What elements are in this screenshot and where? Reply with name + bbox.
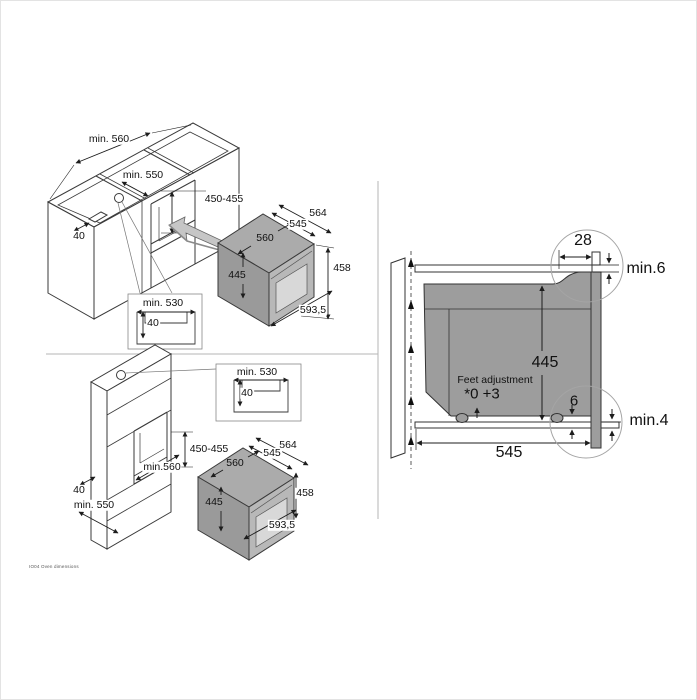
dim-label: 450-455 xyxy=(189,444,230,455)
dim-label: 450-455 xyxy=(204,194,245,205)
dim-label: min.6 xyxy=(625,261,666,277)
dim-label: 445 xyxy=(205,497,223,508)
dim-label: min. 560 xyxy=(88,134,130,145)
shelf xyxy=(415,422,619,428)
dim-label: min. 550 xyxy=(122,170,164,181)
dim-label: *0 +3 xyxy=(464,387,499,402)
base-cabinet-view xyxy=(48,123,334,349)
dim-label: 445 xyxy=(532,355,559,371)
dim-label: 560 xyxy=(256,233,274,244)
dim-label: 545 xyxy=(495,445,524,461)
doc-code: IO04 Oven dimensions xyxy=(29,564,79,569)
dim-label: 564 xyxy=(308,208,328,219)
dim-label: 593,5 xyxy=(268,520,296,531)
dim-label: 28 xyxy=(573,233,593,249)
oven-foot xyxy=(456,414,468,423)
section-view xyxy=(391,230,623,469)
technical-line-art xyxy=(1,1,697,700)
oven-foot xyxy=(551,414,563,423)
dim-label: 40 xyxy=(72,485,86,496)
top-panel xyxy=(415,265,592,272)
dim-label: 458 xyxy=(332,263,352,274)
wall-panel xyxy=(391,258,405,458)
dim-label: 445 xyxy=(228,270,246,281)
dim-label: 560 xyxy=(226,458,244,469)
dim-label: 6 xyxy=(570,394,578,409)
dim-label: 545 xyxy=(288,219,308,230)
dim-label: min. 550 xyxy=(73,500,115,511)
dim-label: 40 xyxy=(240,388,254,399)
dim-label: min. 530 xyxy=(236,367,278,378)
installation-diagram-page: min. 560min. 550450-45540min. 5304056454… xyxy=(0,0,697,700)
dim-label: Feet adjustment xyxy=(457,375,532,386)
dim-label: 545 xyxy=(262,448,282,459)
dim-label: 458 xyxy=(295,488,315,499)
oven-front-frame xyxy=(591,272,601,448)
dim-label: 593,5 xyxy=(299,305,327,316)
dim-label: min. 530 xyxy=(142,298,184,309)
dim-label: min.560 xyxy=(142,462,181,473)
dim-label: 40 xyxy=(146,318,160,329)
dim-label: min.4 xyxy=(628,413,669,429)
dim-label: 40 xyxy=(72,231,86,242)
